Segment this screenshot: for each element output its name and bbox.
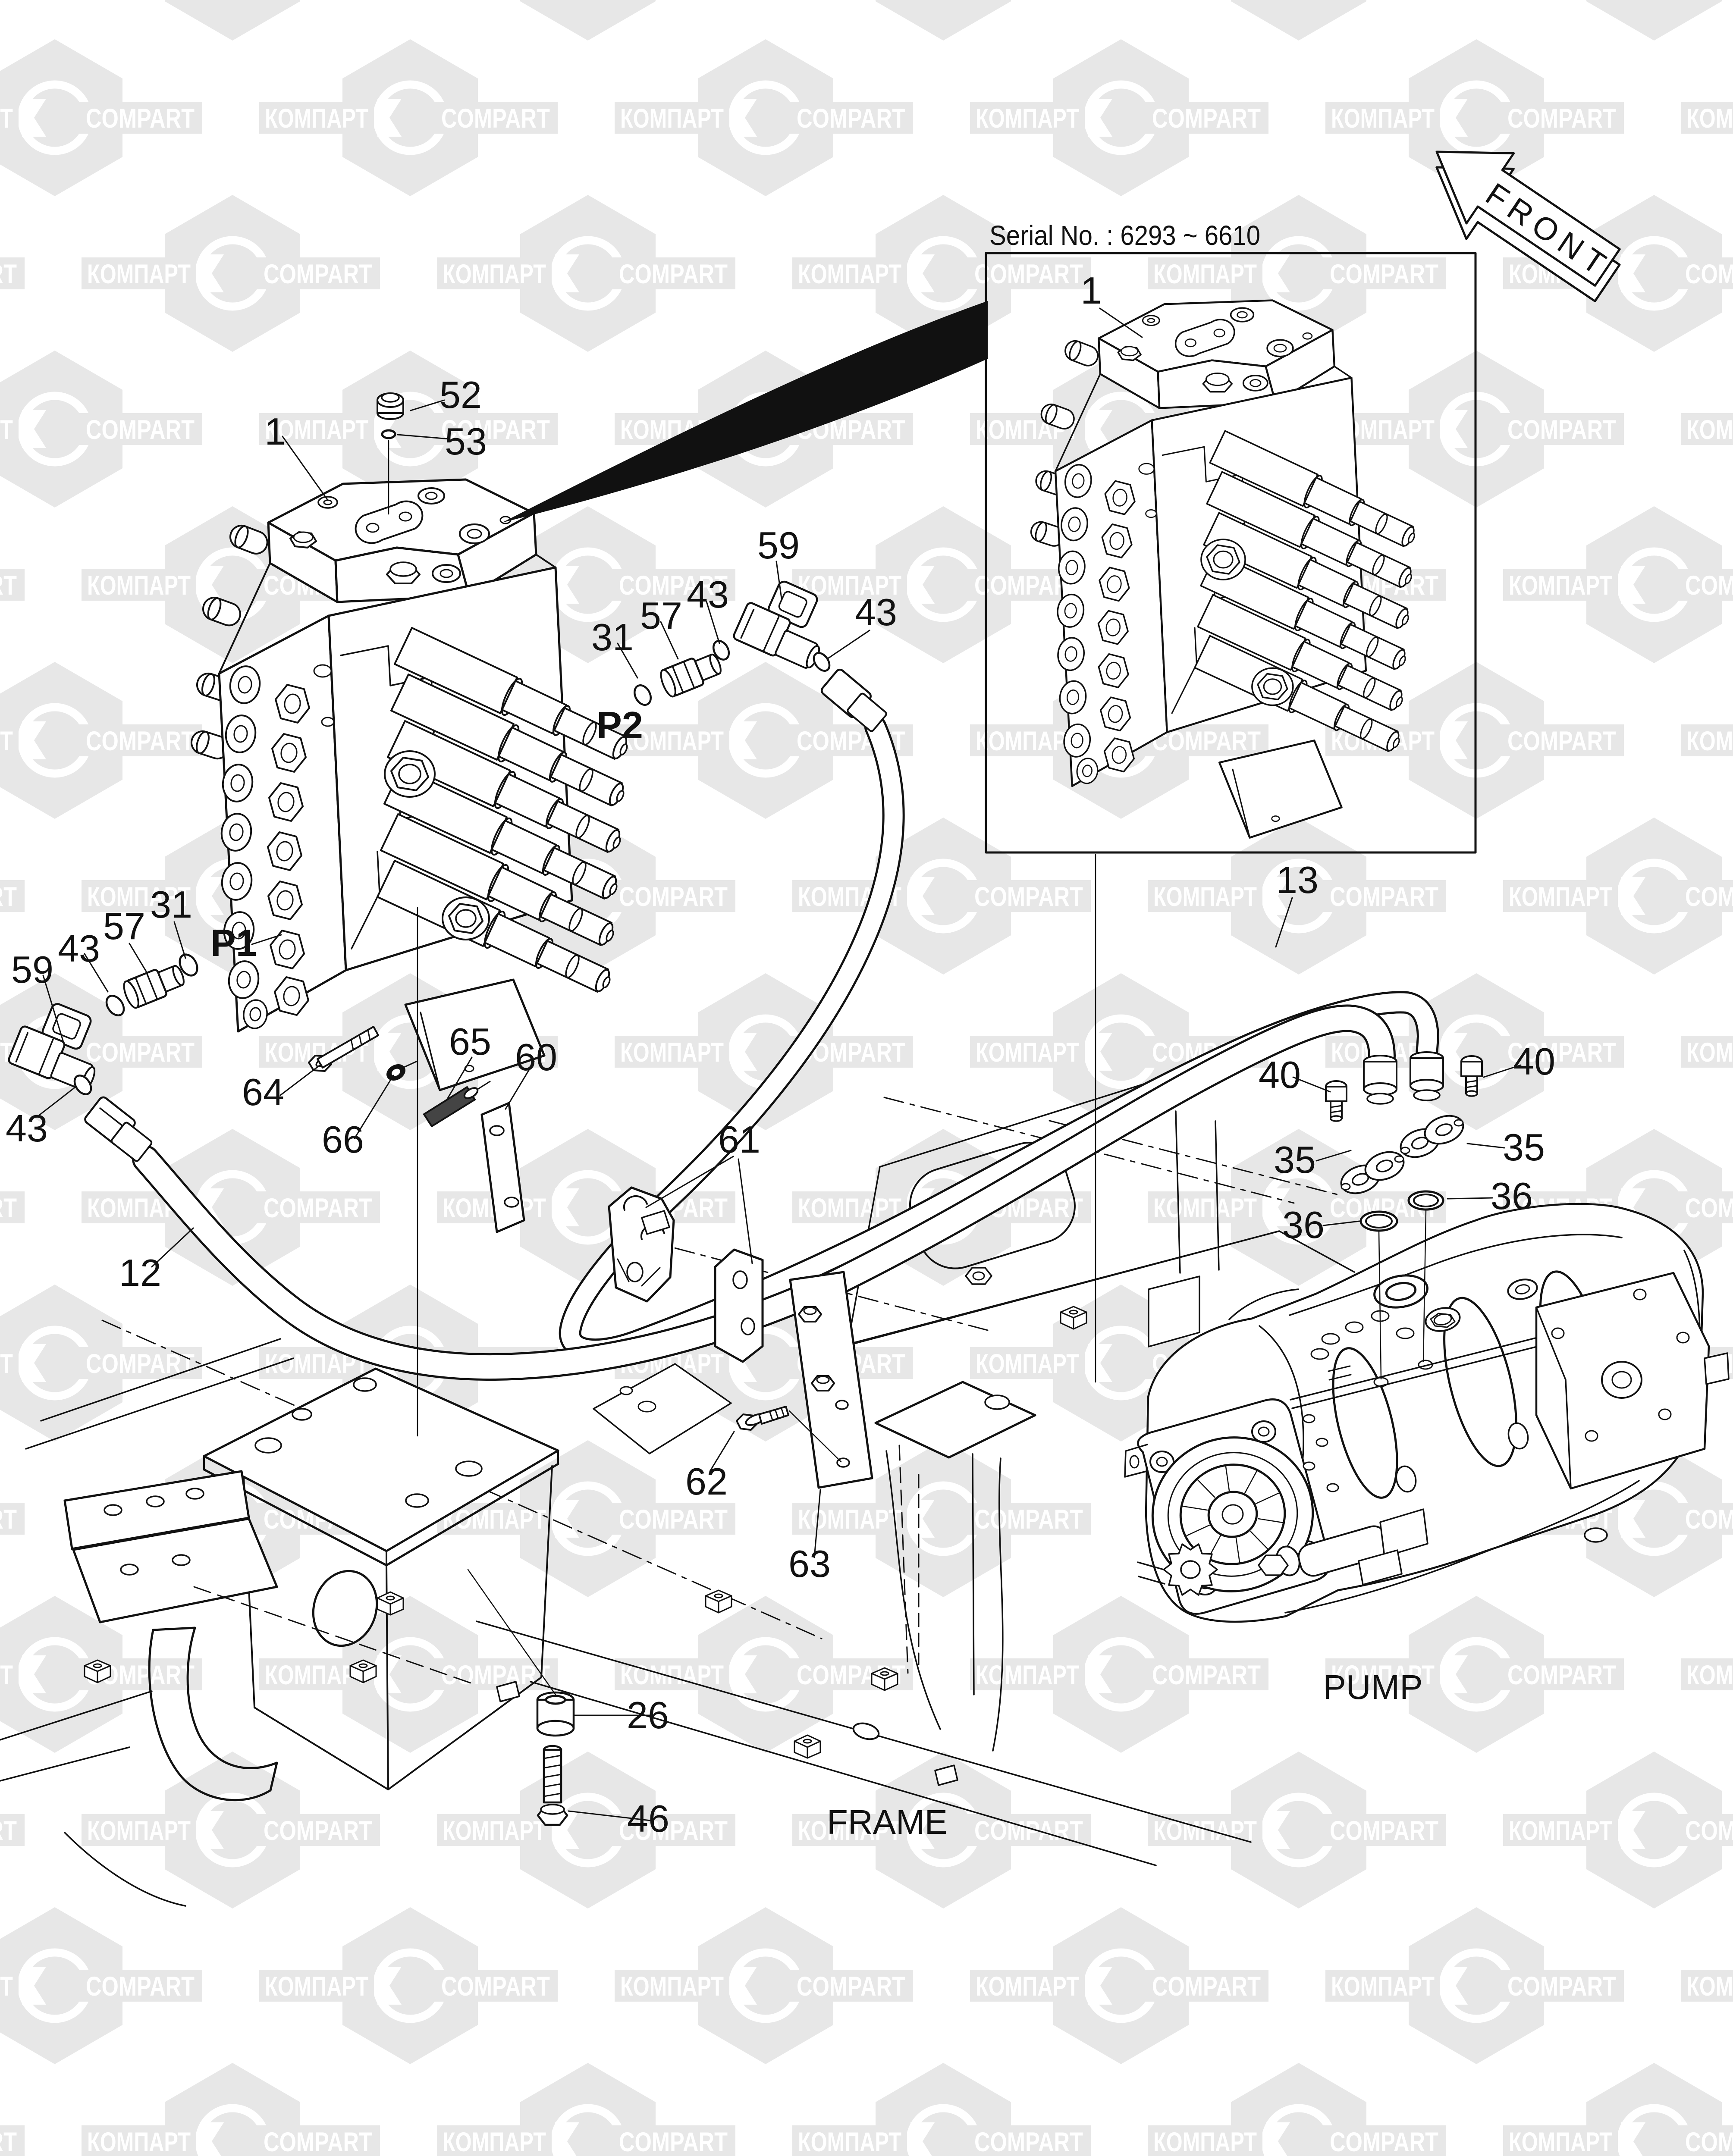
svg-text:65: 65 <box>449 1020 491 1063</box>
svg-text:40: 40 <box>1513 1040 1555 1083</box>
svg-text:P2: P2 <box>597 704 643 746</box>
svg-text:13: 13 <box>1276 859 1319 901</box>
svg-text:36: 36 <box>1491 1175 1533 1217</box>
svg-text:57: 57 <box>640 594 682 637</box>
svg-text:31: 31 <box>591 616 634 658</box>
svg-text:1: 1 <box>265 410 286 453</box>
svg-text:1: 1 <box>1081 269 1102 312</box>
svg-text:62: 62 <box>685 1460 728 1503</box>
svg-text:43: 43 <box>58 927 100 970</box>
svg-text:P1: P1 <box>210 921 257 964</box>
svg-text:66: 66 <box>322 1118 364 1161</box>
svg-text:61: 61 <box>718 1118 760 1161</box>
svg-text:46: 46 <box>627 1797 669 1840</box>
svg-text:53: 53 <box>445 420 487 463</box>
svg-text:43: 43 <box>6 1107 48 1150</box>
svg-text:60: 60 <box>515 1036 557 1078</box>
svg-text:52: 52 <box>440 373 482 416</box>
svg-text:Serial No. : 6293 ~ 6610: Serial No. : 6293 ~ 6610 <box>989 220 1260 251</box>
svg-text:59: 59 <box>11 948 53 991</box>
svg-text:57: 57 <box>103 905 145 947</box>
svg-text:26: 26 <box>627 1694 669 1736</box>
svg-text:43: 43 <box>687 573 729 616</box>
svg-text:35: 35 <box>1503 1126 1545 1169</box>
svg-text:31: 31 <box>150 883 192 926</box>
svg-text:PUMP: PUMP <box>1323 1668 1422 1706</box>
svg-text:59: 59 <box>757 524 800 567</box>
svg-text:12: 12 <box>119 1251 161 1294</box>
svg-text:64: 64 <box>242 1071 284 1113</box>
svg-text:35: 35 <box>1274 1138 1316 1181</box>
svg-text:40: 40 <box>1259 1053 1301 1096</box>
svg-text:63: 63 <box>788 1542 831 1585</box>
svg-text:FRAME: FRAME <box>827 1803 948 1841</box>
svg-text:43: 43 <box>855 591 897 633</box>
svg-text:36: 36 <box>1282 1203 1325 1246</box>
